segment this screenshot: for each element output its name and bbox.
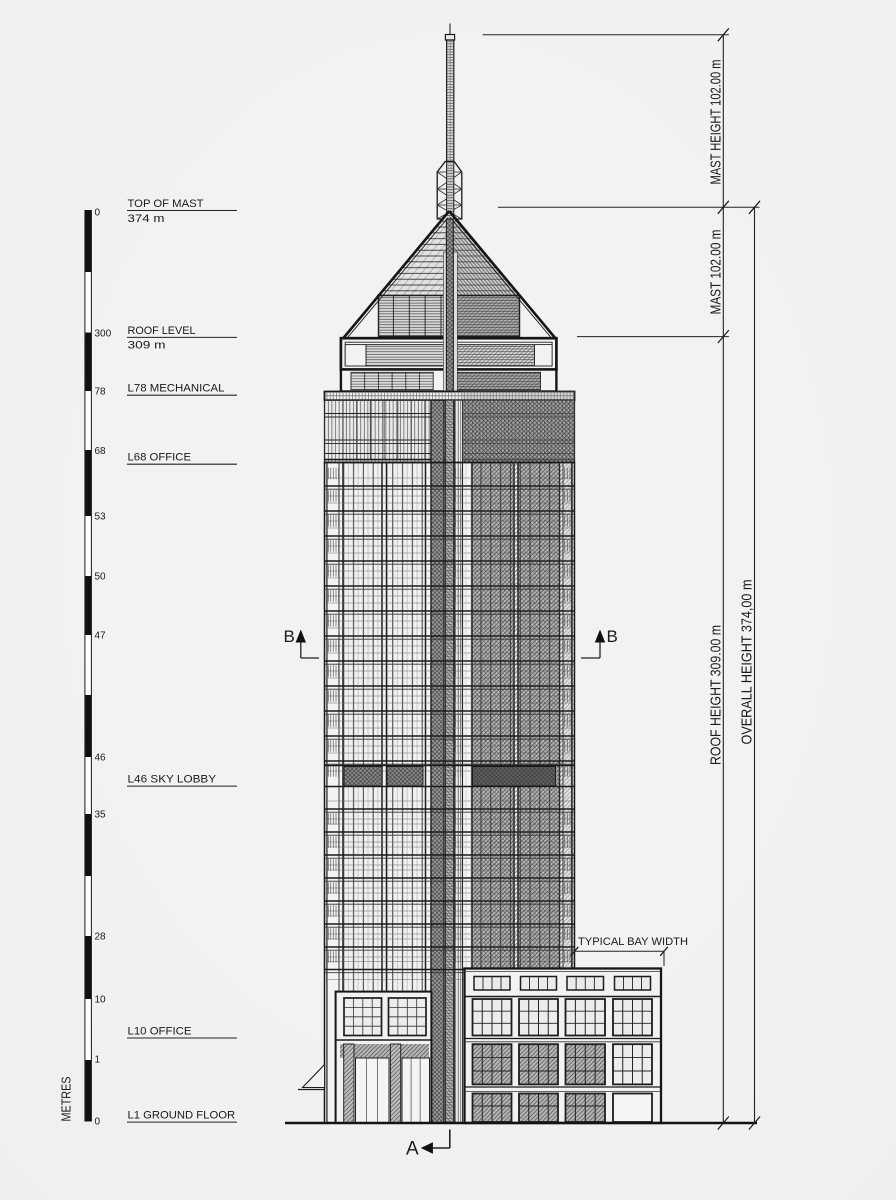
svg-text:METRES: METRES <box>59 1076 74 1121</box>
svg-text:MAST HEIGHT 102.00 m: MAST HEIGHT 102.00 m <box>708 60 724 185</box>
svg-text:MAST 102.00 m: MAST 102.00 m <box>708 230 724 315</box>
svg-text:374 m: 374 m <box>128 213 165 225</box>
svg-text:0: 0 <box>95 1116 101 1127</box>
svg-text:L68 OFFICE: L68 OFFICE <box>128 452 192 464</box>
svg-text:ROOF HEIGHT 309.00 m: ROOF HEIGHT 309.00 m <box>708 625 724 765</box>
svg-text:1: 1 <box>95 1055 101 1066</box>
svg-text:L78 MECHANICAL: L78 MECHANICAL <box>128 383 225 395</box>
svg-text:TYPICAL BAY WIDTH: TYPICAL BAY WIDTH <box>578 936 688 948</box>
svg-text:B: B <box>607 627 618 646</box>
svg-text:35: 35 <box>95 810 107 821</box>
svg-text:L10 OFFICE: L10 OFFICE <box>128 1025 192 1037</box>
svg-text:50: 50 <box>95 572 107 583</box>
svg-text:53: 53 <box>95 512 107 523</box>
svg-text:300: 300 <box>95 329 112 340</box>
svg-text:L1 GROUND FLOOR: L1 GROUND FLOOR <box>128 1110 236 1122</box>
svg-text:47: 47 <box>95 631 107 642</box>
svg-text:28: 28 <box>95 932 107 943</box>
svg-text:78: 78 <box>95 387 107 398</box>
svg-text:TOP OF MAST: TOP OF MAST <box>128 198 204 210</box>
svg-text:309 m: 309 m <box>128 340 166 352</box>
svg-text:B: B <box>284 627 295 646</box>
svg-text:ROOF LEVEL: ROOF LEVEL <box>128 325 196 337</box>
svg-text:0: 0 <box>95 208 101 219</box>
svg-text:OVERALL HEIGHT 374,00 m: OVERALL HEIGHT 374,00 m <box>740 580 756 745</box>
svg-text:10: 10 <box>95 995 107 1006</box>
svg-text:L46 SKY LOBBY: L46 SKY LOBBY <box>128 774 217 786</box>
svg-text:A: A <box>406 1139 419 1160</box>
svg-text:68: 68 <box>95 446 107 457</box>
svg-text:46: 46 <box>95 753 107 764</box>
